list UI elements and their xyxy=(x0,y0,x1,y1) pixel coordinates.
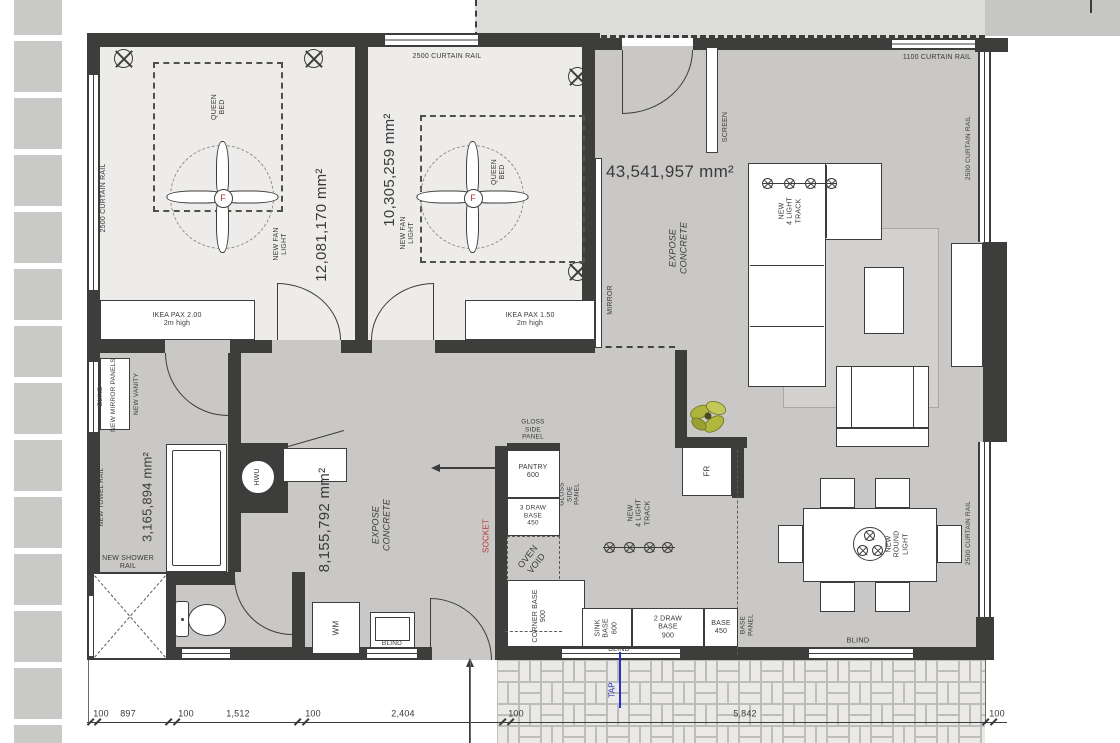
paver-square xyxy=(14,0,62,35)
round-light-bulb-icon xyxy=(857,545,868,556)
socket-label: SOCKET xyxy=(481,519,490,553)
paver-column xyxy=(14,0,62,743)
screen-panel xyxy=(706,47,718,153)
wall-bottom xyxy=(680,647,809,660)
hwu-label: HWU xyxy=(254,468,262,485)
gloss-panel-side-label: GLOSS SIDE PANEL xyxy=(559,482,582,505)
ceiling-light-icon xyxy=(304,49,323,68)
track-light-icon xyxy=(826,178,837,189)
tap-line xyxy=(619,652,621,708)
wall-under-beds xyxy=(341,340,372,353)
dimension-guide xyxy=(470,660,471,743)
dining-chair xyxy=(875,582,910,612)
dimension-line xyxy=(87,722,1007,723)
dim-100: 100 xyxy=(178,709,194,720)
window-right-lower xyxy=(978,442,991,617)
gloss-panel-top-label: GLOSS SIDE PANEL xyxy=(521,419,544,442)
bed2-door-leaf xyxy=(433,283,434,340)
top-right-paving xyxy=(985,0,1120,36)
ceiling-light-icon xyxy=(568,262,587,281)
toilet-bowl xyxy=(188,604,226,636)
wall-bed1-bed2 xyxy=(355,46,368,340)
opening-dashed-line xyxy=(595,346,675,348)
direction-arrow-head-icon xyxy=(431,464,440,472)
bath-area-label: 3,165,894 mm² xyxy=(139,452,154,542)
coffee-table xyxy=(864,267,904,334)
hall-cupboard xyxy=(283,448,347,482)
two-drawer-label: 2 DRAW BASE 900 xyxy=(654,616,682,641)
paver-square xyxy=(14,212,62,263)
paver-square xyxy=(14,41,62,92)
window-bed1-left xyxy=(87,75,100,290)
dimension-guide xyxy=(88,660,89,724)
bed2-curtain-rail-label: 2500 CURTAIN RAIL xyxy=(413,53,482,61)
corner-base-label: CORNER BASE 900 xyxy=(532,589,549,642)
shower xyxy=(93,573,167,659)
armchair-arm xyxy=(836,366,852,428)
window-bottom-wc xyxy=(182,647,230,660)
paver-square xyxy=(14,611,62,662)
track-light-icon xyxy=(644,542,655,553)
wm-label: WM xyxy=(331,621,340,636)
three-drawer-label: 3 DRAW BASE 450 xyxy=(520,505,546,528)
floor-plan: F QUEEN BED NEW FAN LIGHT 12,081,170 mm²… xyxy=(0,0,1120,743)
track-light-icon xyxy=(662,542,673,553)
mirror-panel xyxy=(595,158,602,348)
window-bed2-top xyxy=(385,33,478,47)
bed1-fan-light-label: NEW FAN LIGHT xyxy=(273,227,290,260)
wall-under-beds xyxy=(230,340,272,353)
ceiling-light-icon xyxy=(568,67,587,86)
fridge-label: FR xyxy=(702,465,711,476)
bed2-area-label: 10,305,259 mm² xyxy=(381,113,399,226)
patio-paving xyxy=(497,660,985,743)
paver-square xyxy=(14,725,62,743)
dining-chair xyxy=(875,478,910,508)
towel-rail-label: NEW TOWEL RAIL xyxy=(98,468,106,527)
base-panel-label: BASE PANEL xyxy=(739,614,754,636)
bed2-wardrobe-label: IKEA PAX 1.50 2m high xyxy=(505,312,554,329)
living-area-label: 43,541,957 mm² xyxy=(606,162,734,182)
paver-square xyxy=(14,98,62,149)
paver-square xyxy=(14,497,62,548)
track-light-icon xyxy=(604,542,615,553)
dim-897: 897 xyxy=(120,709,136,720)
curtain-right-upper-label: 2500 CURTAIN RAIL xyxy=(965,116,973,180)
bed1-queen-bed-label: QUEEN BED xyxy=(211,94,228,120)
basketweave-pattern xyxy=(497,660,985,743)
paver-square xyxy=(14,155,62,206)
paver-square xyxy=(14,554,62,605)
wall-top-bed2 xyxy=(478,33,600,47)
paver-square xyxy=(14,440,62,491)
wall-right-block xyxy=(983,242,1007,442)
dim-100: 100 xyxy=(93,709,109,720)
bed1-curtain-rail-label: 2500 CURTAIN RAIL xyxy=(100,164,108,233)
sofa-cushion-line xyxy=(750,265,824,266)
bathtub-inner xyxy=(172,450,221,566)
dim-1512: 1,512 xyxy=(226,709,250,720)
living-finish-label: EXPOSE CONCRETE xyxy=(667,222,688,274)
ceiling-fan-icon: F xyxy=(417,142,527,252)
screen-label: SCREEN xyxy=(722,112,730,142)
ceiling-light-icon xyxy=(114,49,133,68)
dining-chair xyxy=(820,478,855,508)
mirror-panels-label: NEW MIRROR PANELS xyxy=(110,358,118,432)
round-light-bulb-icon xyxy=(872,545,883,556)
fan-letter: F xyxy=(464,189,483,208)
track-light-icon xyxy=(624,542,635,553)
window-bottom-dining xyxy=(809,647,913,660)
wall-kitchen-left xyxy=(495,446,507,660)
window-right-upper xyxy=(978,52,991,242)
potted-plant-icon xyxy=(686,394,730,438)
round-light-bulb-icon xyxy=(864,530,875,541)
wall-top-bed1 xyxy=(87,33,370,47)
bed2-fan-light-label: NEW FAN LIGHT xyxy=(400,216,417,249)
bath-blind-label: BLIND xyxy=(97,386,105,406)
living-door-leaf xyxy=(622,50,623,114)
wall-wc-right xyxy=(292,572,305,660)
paver-square xyxy=(14,326,62,377)
dim-100: 100 xyxy=(989,709,1005,720)
kitchen-track-label: NEW 4 LIGHT TRACK xyxy=(628,499,653,527)
wall-pantry-cap xyxy=(507,443,560,450)
wall-under-beds xyxy=(87,340,165,353)
sofa-cushion-line xyxy=(826,165,827,238)
dim-2404: 2,404 xyxy=(391,709,415,720)
round-light-label: NEW ROUND LIGHT xyxy=(886,531,911,558)
bed1-door-leaf xyxy=(277,283,278,340)
dining-chair xyxy=(820,582,855,612)
tap-label: TAP xyxy=(607,682,616,698)
bed1-wardrobe-label: IKEA PAX 2.00 2m high xyxy=(152,312,201,329)
paver-square xyxy=(14,383,62,434)
direction-arrow-line xyxy=(440,467,502,469)
sofa-cushion-line xyxy=(750,326,824,327)
wall-top-living-b xyxy=(693,38,892,50)
track-light-icon xyxy=(805,178,816,189)
laundry-blind-label: BLIND xyxy=(382,640,402,648)
curtain-right-lower-label: 2500 CURTAIN RAIL xyxy=(965,501,973,565)
pantry-label: PANTRY 600 xyxy=(519,464,548,481)
hall-area-label: 8,155,792 mm² xyxy=(316,468,334,573)
window-living-top xyxy=(892,38,980,50)
sofa-track-line xyxy=(762,183,836,184)
shower-rail-label: NEW SHOWER RAIL xyxy=(102,555,154,572)
paver-square xyxy=(14,269,62,320)
paver-square xyxy=(14,668,62,719)
dimension-guide xyxy=(985,660,986,724)
wall-corner-tr xyxy=(975,38,1008,52)
fan-letter: F xyxy=(214,189,233,208)
curtain-1100-label: 1100 CURTAIN RAIL xyxy=(903,54,971,62)
dining-blind-label: BLIND xyxy=(846,637,869,646)
wall-top-living-a xyxy=(595,38,622,50)
base-450-label: BASE 450 xyxy=(711,620,730,637)
mirror-label: MIRROR xyxy=(607,285,615,315)
vanity-label: NEW VANITY xyxy=(133,373,141,415)
sofa-track-label: NEW 4 LIGHT TRACK xyxy=(779,197,804,225)
wall-under-beds xyxy=(435,340,595,353)
wall-top xyxy=(370,33,385,47)
track-light-icon xyxy=(784,178,795,189)
bed1-area-label: 12,081,170 mm² xyxy=(313,168,331,281)
hall-finish-label: EXPOSE CONCRETE xyxy=(370,499,391,551)
wall-bottom xyxy=(913,647,985,660)
dining-chair xyxy=(937,525,962,563)
armchair-arm xyxy=(913,366,929,428)
entry-door-leaf xyxy=(430,598,431,660)
dim-100: 100 xyxy=(508,709,524,720)
wall-fridge-right xyxy=(732,440,744,498)
dim-5842: 5,842 xyxy=(733,709,757,720)
wall-bath-right xyxy=(228,353,241,572)
dining-chair xyxy=(778,525,803,563)
window-bottom-laundry xyxy=(367,647,417,660)
sink-base-label: SINK BASE 600 xyxy=(595,618,620,637)
laundry-blind-inner xyxy=(375,617,410,641)
dim-100: 100 xyxy=(305,709,321,720)
tv-unit xyxy=(951,243,983,367)
toilet-button xyxy=(181,618,184,621)
ceiling-fan-icon: F xyxy=(167,142,277,252)
armchair-back xyxy=(836,428,929,447)
track-light-icon xyxy=(762,178,773,189)
fence-line xyxy=(1090,0,1092,13)
bed2-queen-bed-label: QUEEN BED xyxy=(491,159,508,185)
